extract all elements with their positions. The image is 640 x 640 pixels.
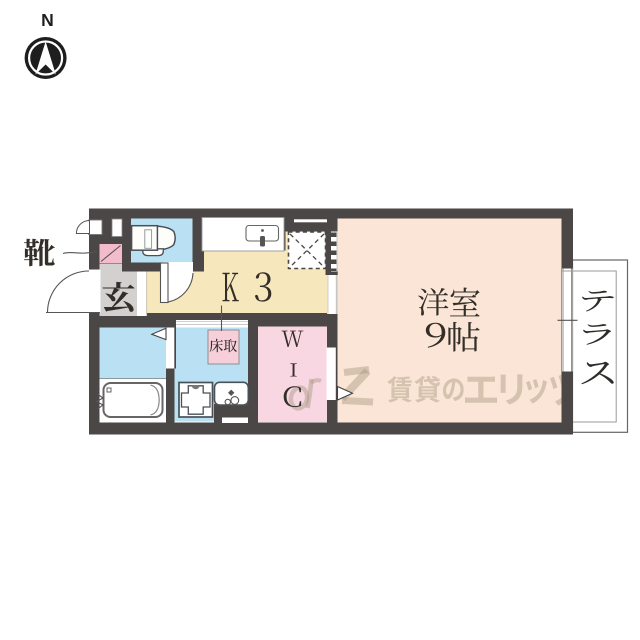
svg-text:N: N xyxy=(41,10,54,30)
